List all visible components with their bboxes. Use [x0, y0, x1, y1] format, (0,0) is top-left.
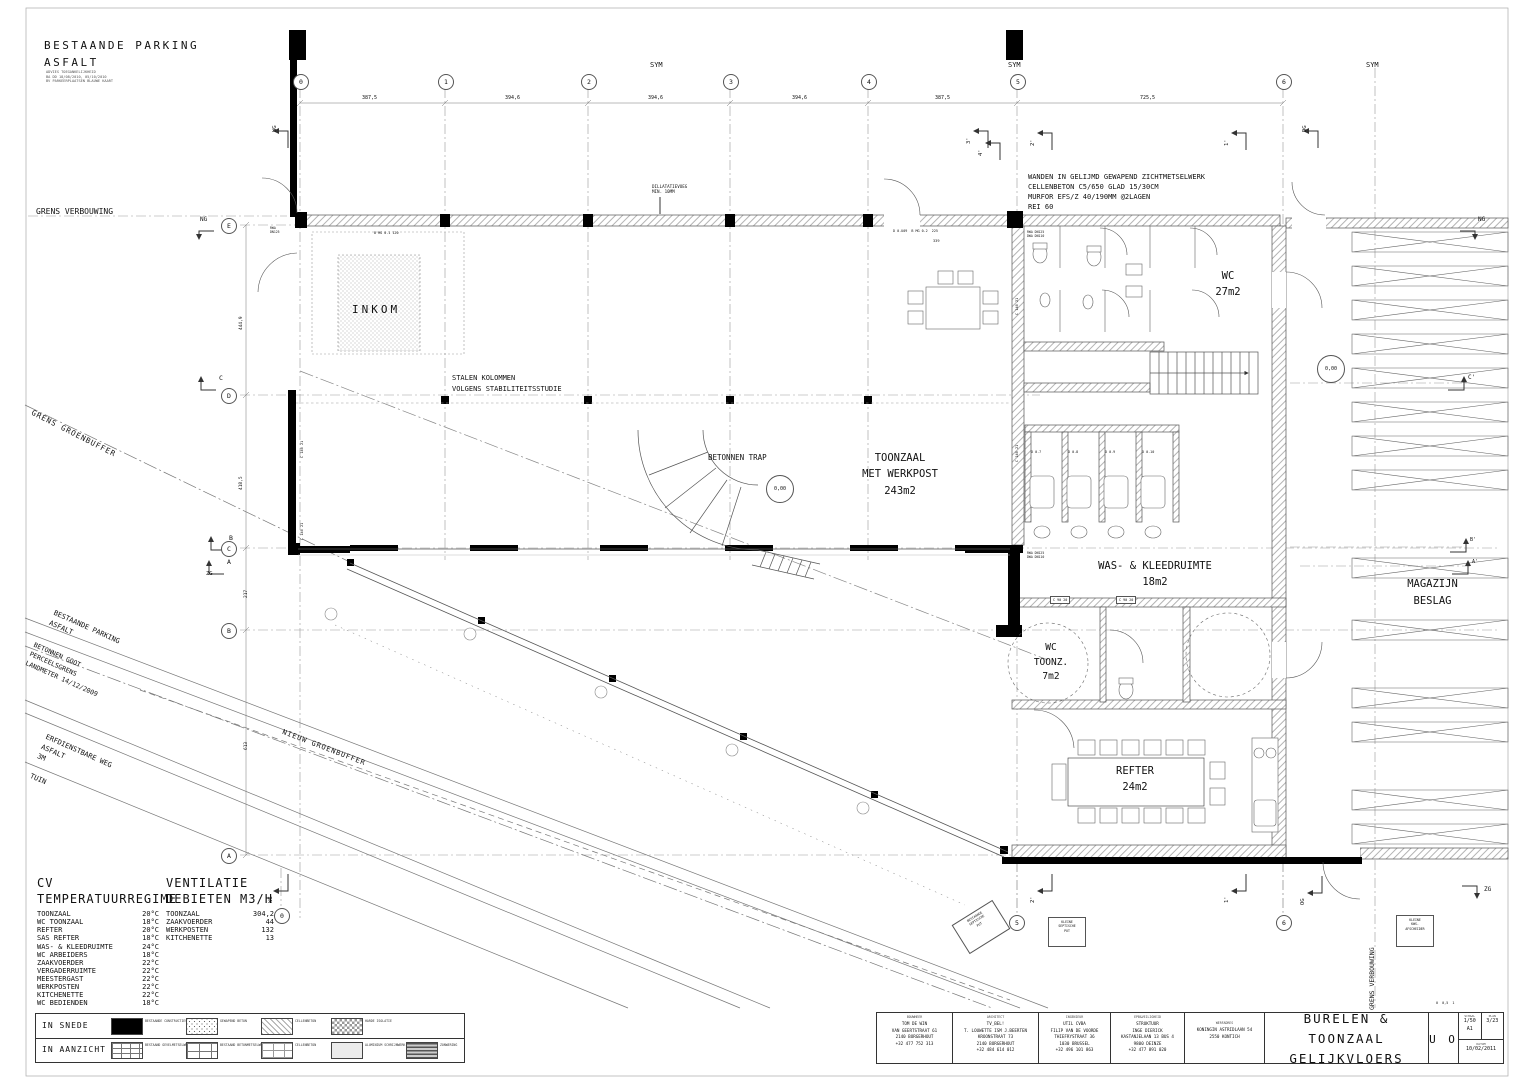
tb-header: BOUWHEER — [877, 1015, 952, 1019]
titleblock-project-title: BURELEN & TOONZAAL GELIJKVLOERS — [1265, 1013, 1429, 1063]
cv-row-value: 22°C — [142, 975, 159, 983]
mark-dg-top: DG — [1302, 125, 1309, 132]
floorplan-sheet: BESTAANDE PARKING ASFALT ADVIES TOEGANKE… — [0, 0, 1536, 1086]
level-mark-upper: 0,00 — [1317, 355, 1345, 383]
swatch-cellenbeton-snede — [261, 1018, 293, 1035]
titleblock-stamp: U O — [1429, 1013, 1459, 1063]
code-d010: D 0.10 — [1142, 450, 1154, 454]
project-title-line2: GELIJKVLOERS — [1265, 1049, 1428, 1069]
code-bmg1: B MG 0.1 120 — [374, 231, 399, 235]
tb-header: WERFADRES — [1185, 1021, 1264, 1025]
vent-row-value: 132 — [261, 926, 274, 934]
grid-bubble-2-top: 2 — [581, 74, 597, 90]
legend: IN SNEDE BESTAANDE CONSTRUCTIES GEWAPEND… — [35, 1013, 465, 1063]
mark-section-a: A — [227, 558, 231, 566]
cv-row-label: VERGADERRUIMTE — [37, 967, 96, 975]
meta-plan: PLAN 3/23 — [1482, 1013, 1504, 1039]
vent-row: ZAAKVOERDER44 — [166, 918, 274, 926]
grid-bubble-4-top: 4 — [861, 74, 877, 90]
code-c14021-4: C 140 21 — [1015, 445, 1020, 462]
schaal-value: 1/50 A1 — [1459, 1018, 1481, 1033]
room-refter: REFTER 24m2 — [1095, 763, 1175, 796]
cv-row-label: WC BEDIENDEN — [37, 999, 88, 1007]
mark-2acc-top: 2' — [1030, 139, 1037, 146]
stalen-note: STALEN KOLOMMEN VOLGENS STABILITEITSSTUD… — [452, 373, 562, 395]
dim-394c: 394,6 — [792, 95, 807, 102]
note-kleine-septische-put: KLEINE SEPTISCHE PUT — [1048, 917, 1086, 947]
wall-note: WANDEN IN GELIJMD GEWAPEND ZICHTMETSELWE… — [1028, 172, 1205, 213]
vent-row-label: WERKPOSTEN — [166, 926, 208, 934]
code-c9020-2: C 90 20 — [1116, 596, 1136, 604]
room-wc-toonzaal: WC TOONZ. 7m2 — [1016, 641, 1086, 685]
cv-row: WC ARBEIDERS18°C — [37, 951, 159, 959]
grid-bubble-6-bottom: 6 — [1276, 915, 1292, 931]
cv-row-value: 18°C — [142, 934, 159, 942]
cv-row-value: 24°C — [142, 943, 159, 951]
grid-bubble-a: A — [221, 848, 237, 864]
plan-value: 3/23 — [1482, 1018, 1504, 1026]
mark-1acc-bottom: 1' — [1224, 896, 1231, 903]
mark-1acc-top: 1' — [1224, 139, 1231, 146]
cv-row-label: REFTER — [37, 926, 62, 934]
swatch-bestaande-constructies — [111, 1018, 143, 1035]
cv-row-label: WAS- & KLEEDRUIMTE — [37, 943, 113, 951]
grid-bubble-5-bottom: 5 — [1009, 915, 1025, 931]
legend-snede-label: IN SNEDE — [42, 1021, 89, 1030]
room-inkom: INKOM — [352, 303, 400, 317]
cv-row-value: 22°C — [142, 983, 159, 991]
legend-item-label: HARDE ISOLATIE — [365, 1019, 415, 1023]
vent-row-label: ZAAKVOERDER — [166, 918, 212, 926]
dim-394b: 394,6 — [648, 95, 663, 102]
code-c14021-3: C 140 21 — [1015, 298, 1020, 315]
grid-bubble-6-top: 6 — [1276, 74, 1292, 90]
code-rwa-2: RWA DN125 DWA DN110 — [1027, 230, 1044, 238]
code-rwa-1: RWA DN125 — [270, 226, 280, 234]
cv-title-1: CV — [37, 876, 159, 892]
code-d08: D 0.8 — [1068, 450, 1078, 454]
cv-row: REFTER20°C — [37, 926, 159, 934]
mark-3acc: 3' — [966, 137, 973, 144]
site-label-bestaande-parking: BESTAANDE PARKING ASFALT — [44, 38, 199, 71]
curtain-wall-and-facade — [298, 549, 1010, 857]
tb-header: INGENIEUR — [1039, 1015, 1110, 1019]
cv-row: TOONZAAL20°C — [37, 910, 159, 918]
cv-row-label: MEESTERGAST — [37, 975, 83, 983]
titleblock-meta: SCHAAL 1/50 A1 PLAN 3/23 DATUM 10/02/201… — [1459, 1013, 1503, 1063]
swatch-harde-isolatie — [331, 1018, 363, 1035]
vent-title-2: DEBIETEN M3/H — [166, 892, 274, 908]
code-d07: D 0.7 — [1031, 450, 1041, 454]
walls-hatched — [297, 215, 1508, 859]
vent-row-value: 44 — [266, 918, 274, 926]
cv-row: VERGADERRUIMTE22°C — [37, 967, 159, 975]
dim-725: 725,5 — [1140, 95, 1155, 102]
grid-bubble-0-bottom: 0 — [274, 908, 290, 924]
room-toonzaal: TOONZAAL MET WERKPOST 243m2 — [845, 450, 955, 499]
grid-bubble-c: C — [221, 541, 237, 557]
titleblock-ingenieur: INGENIEUR UTIL CVBA FILIP VAN DE VOORDE … — [1039, 1013, 1111, 1063]
room-magazijn: MAGAZIJN BESLAG — [1390, 576, 1475, 610]
legend-row-aanzicht: IN AANZICHT BESTAAND GEVELMETSELWERK BES… — [36, 1038, 464, 1062]
stair-upper — [1150, 352, 1258, 394]
cv-row: MEESTERGAST22°C — [37, 975, 159, 983]
dim-613: 613 — [244, 742, 250, 750]
cv-row: SAS REFTER18°C — [37, 934, 159, 942]
tb-line: KASTANJELAAN 13 BUS 4 — [1111, 1034, 1184, 1041]
grens-verbouwing-vertical: GRENS VERBOUWING — [1368, 947, 1376, 1010]
cv-row: WC TOONZAAL18°C — [37, 918, 159, 926]
mini-scalebar: 0 0,5 1 — [1436, 1001, 1454, 1005]
fixtures — [908, 243, 1278, 832]
tb-line: +32 477 752 313 — [877, 1041, 952, 1048]
legend-item-label: ZONWERING — [440, 1043, 464, 1047]
cv-row-label: WERKPOSTEN — [37, 983, 79, 991]
cv-row-value: 20°C — [142, 910, 159, 918]
code-d09: D 0.9 — [1105, 450, 1115, 454]
mark-section-c: C — [219, 374, 223, 382]
betonnen-trap-label: BETONNEN TRAP — [708, 453, 767, 463]
titleblock-werfadres: WERFADRES KONINGIN ASTRIDLAAN 54 2550 KO… — [1185, 1013, 1265, 1063]
sym-label-1: SYM — [650, 61, 663, 70]
code-rwa-3: RWA DN125 DWA DN110 — [1027, 551, 1044, 559]
titleblock-bouwheer: BOUWHEER TOM DE WIN VAN GEERTSTRAAT 61 2… — [877, 1013, 953, 1063]
grid-bubble-b: B — [221, 623, 237, 639]
cv-row-label: WC ARBEIDERS — [37, 951, 88, 959]
sym-label-2: SYM — [1008, 61, 1021, 70]
vent-row-value: 13 — [266, 934, 274, 942]
cv-row-label: SAS REFTER — [37, 934, 79, 942]
cv-row-value: 22°C — [142, 967, 159, 975]
swatch-gevelmetselwerk — [111, 1042, 143, 1059]
ng-mark-left: NG — [200, 216, 207, 224]
tb-header: ARCHITECT — [953, 1015, 1038, 1019]
cv-row-value: 18°C — [142, 951, 159, 959]
vent-row-label: KITCHENETTE — [166, 934, 212, 942]
grid-bubble-3-top: 3 — [723, 74, 739, 90]
cv-row-value: 18°C — [142, 999, 159, 1007]
room-wc: WC 27m2 — [1196, 268, 1260, 301]
vent-row: WERKPOSTEN132 — [166, 926, 274, 934]
mark-wg-top: WG — [272, 125, 279, 132]
tb-header: EPB&VEILIGHEID — [1111, 1015, 1184, 1019]
cv-row: WC BEDIENDEN18°C — [37, 999, 159, 1007]
tb-line: +32 484 614 012 — [953, 1047, 1038, 1054]
dim-394a: 394,6 — [505, 95, 520, 102]
code-c9020-1: C 90 20 — [1050, 596, 1070, 604]
mark-zg-bottomright: ZG — [1484, 886, 1491, 894]
cv-row-value: 20°C — [142, 926, 159, 934]
dim-387b: 387,5 — [935, 95, 950, 102]
code-bmg2: D 0.U09 B MG 0.2 225 — [893, 229, 938, 233]
dim-4185: 418,5 — [239, 476, 245, 490]
tb-line: +32 477 891 020 — [1111, 1047, 1184, 1054]
meta-datum: DATUM 10/02/2011 — [1459, 1040, 1503, 1063]
mark-og-bottom: OG — [1300, 898, 1307, 905]
cv-row-value: 18°C — [142, 918, 159, 926]
swatch-zonwering — [406, 1042, 438, 1059]
mark-4acc: 4' — [978, 149, 985, 156]
grid-bubble-0-top: 0 — [293, 74, 309, 90]
mark-zg-left: ZG — [206, 571, 213, 578]
tb-line: +32 496 101 863 — [1039, 1047, 1110, 1054]
code-c14021-1: C 140 21 — [300, 441, 305, 458]
legend-row-snede: IN SNEDE BESTAANDE CONSTRUCTIES GEWAPEND… — [36, 1014, 464, 1039]
dim-387a: 387,5 — [362, 95, 377, 102]
dilatatie-note: DILLATATIEVOEG MIN. 10MM — [652, 184, 687, 195]
cv-row: KITCHENETTE22°C — [37, 991, 159, 999]
interior-thin-lines — [296, 226, 1195, 403]
project-title-line1: BURELEN & TOONZAAL — [1265, 1009, 1428, 1049]
room-was-kleedruimte: WAS- & KLEEDRUIMTE 18m2 — [1085, 558, 1225, 591]
legend-aanzicht-label: IN AANZICHT — [42, 1045, 106, 1054]
swatch-betonmetselwerk — [186, 1042, 218, 1059]
cv-row-label: ZAAKVOERDER — [37, 959, 83, 967]
datum-value: 10/02/2011 — [1459, 1046, 1503, 1054]
cv-row-label: KITCHENETTE — [37, 991, 83, 999]
storage-racks — [1352, 232, 1508, 844]
grid-bubble-d: D — [221, 388, 237, 404]
cv-row: WERKPOSTEN22°C — [37, 983, 159, 991]
vent-table: VENTILATIE DEBIETEN M3/H TOONZAAL304,2 Z… — [166, 876, 274, 943]
vent-row-label: TOONZAAL — [166, 910, 200, 918]
walls-black — [288, 30, 1362, 864]
titleblock-architect: ARCHITECT TV_BEL! T. LOUWETTE ISM J.BEER… — [953, 1013, 1039, 1063]
cv-row-value: 22°C — [142, 959, 159, 967]
dim-339: 339 — [933, 239, 940, 244]
facade-column-bubbles — [325, 608, 869, 814]
swatch-aluminium-schrijnwerk — [331, 1042, 363, 1059]
ng-mark-right: NG — [1478, 216, 1485, 224]
titleblock-epb: EPB&VEILIGHEID STRUKTUUR INGE DIERICK KA… — [1111, 1013, 1185, 1063]
grid-bubble-5-top: 5 — [1010, 74, 1026, 90]
meta-schaal: SCHAAL 1/50 A1 — [1459, 1013, 1482, 1039]
tb-line: KONINGIN ASTRIDLAAN 54 — [1185, 1027, 1264, 1034]
vent-row-value: 304,2 — [253, 910, 274, 918]
grens-verbouwing-label: GRENS VERBOUWING — [36, 207, 113, 217]
swatch-gewapend-beton — [186, 1018, 218, 1035]
cv-row: WAS- & KLEEDRUIMTE24°C — [37, 943, 159, 951]
cv-row: ZAAKVOERDER22°C — [37, 959, 159, 967]
swatch-cellenbeton-aanzicht — [261, 1042, 293, 1059]
note-kws-afscheider: KLEINE KWS- AFSCHEIDER — [1396, 915, 1434, 947]
vent-row: TOONZAAL304,2 — [166, 910, 274, 918]
sym-label-3: SYM — [1366, 61, 1379, 70]
dim-4449: 444,9 — [239, 316, 245, 330]
dim-217: 217 — [244, 590, 250, 598]
cv-table: CV TEMPERATUURREGIME TOONZAAL20°C WC TOO… — [37, 876, 159, 1007]
code-c14021-2: C 140 21 — [300, 523, 305, 540]
tb-line: 2550 KONTICH — [1185, 1034, 1264, 1041]
level-mark-stair: 0,00 — [766, 475, 794, 503]
cv-title-2: TEMPERATUURREGIME — [37, 892, 159, 908]
cv-row-label: WC TOONZAAL — [37, 918, 83, 926]
vent-row: KITCHENETTE13 — [166, 934, 274, 942]
grid-bubble-1-top: 1 — [438, 74, 454, 90]
grid-bubble-e: E — [221, 218, 237, 234]
stamp-text: U O — [1429, 1033, 1458, 1046]
site-label-parking-subnote: ADVIES TOEGANKELIJKHEID BA DD 18/08/2010… — [46, 70, 113, 84]
vent-title-1: VENTILATIE — [166, 876, 274, 892]
mark-b-accent: B' — [1470, 537, 1476, 544]
cv-row-label: TOONZAAL — [37, 910, 71, 918]
mark-2acc-bottom: 2' — [1030, 896, 1037, 903]
mark-a-accent: A' — [1472, 559, 1478, 566]
cv-row-value: 22°C — [142, 991, 159, 999]
mark-c-accent: C' — [1468, 374, 1475, 382]
titleblock: BOUWHEER TOM DE WIN VAN GEERTSTRAAT 61 2… — [876, 1012, 1504, 1064]
